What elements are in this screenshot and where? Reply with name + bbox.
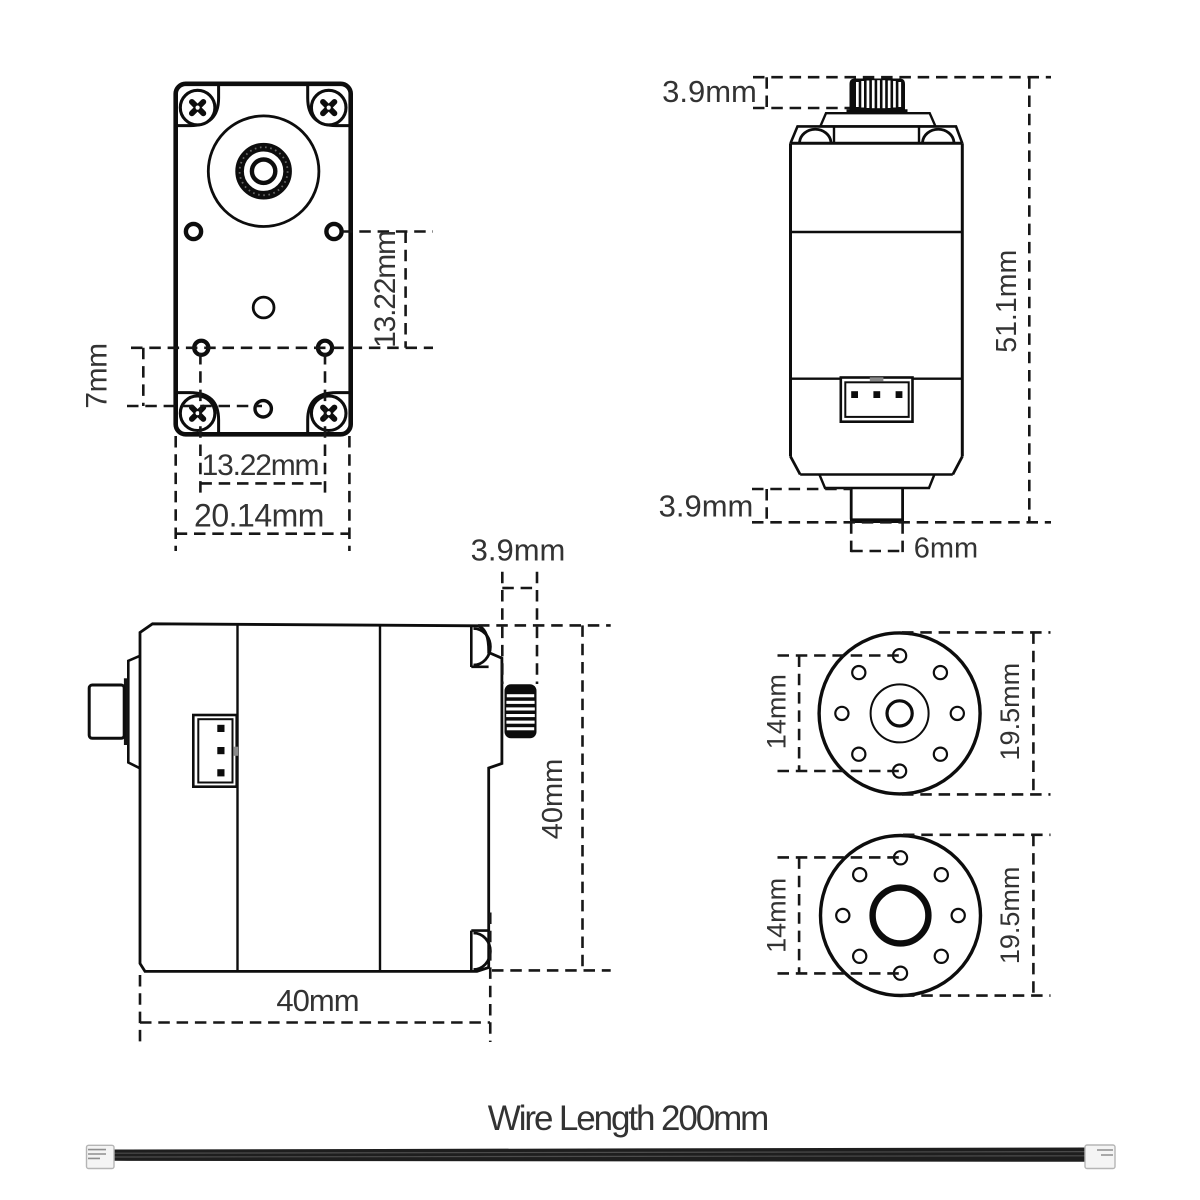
svg-text:19.5mm: 19.5mm <box>995 867 1025 965</box>
svg-text:Wire Length 200mm: Wire Length 200mm <box>488 1099 767 1138</box>
svg-text:14mm: 14mm <box>762 674 792 749</box>
svg-text:3.9mm: 3.9mm <box>471 533 566 568</box>
svg-text:3.9mm: 3.9mm <box>662 74 757 109</box>
svg-text:6mm: 6mm <box>914 533 978 565</box>
svg-text:51.1mm: 51.1mm <box>991 250 1023 353</box>
svg-text:13.22mm: 13.22mm <box>369 231 402 348</box>
svg-text:40mm: 40mm <box>537 759 569 840</box>
svg-text:19.5mm: 19.5mm <box>995 663 1025 761</box>
svg-text:40mm: 40mm <box>276 983 358 1018</box>
svg-text:13.22mm: 13.22mm <box>202 449 319 482</box>
svg-text:14mm: 14mm <box>762 878 792 953</box>
svg-text:7mm: 7mm <box>81 343 114 408</box>
svg-text:20.14mm: 20.14mm <box>194 498 324 534</box>
svg-text:3.9mm: 3.9mm <box>659 489 754 524</box>
